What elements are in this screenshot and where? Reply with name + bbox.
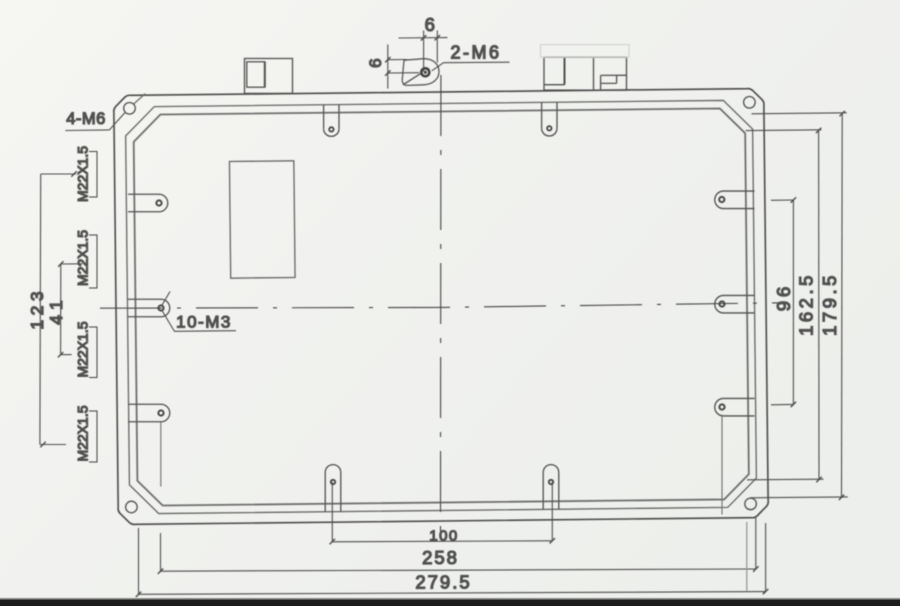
svg-text:4-M6: 4-M6 xyxy=(66,110,106,128)
svg-text:41: 41 xyxy=(46,295,66,324)
svg-text:M22X1.5: M22X1.5 xyxy=(75,405,91,461)
svg-text:96: 96 xyxy=(773,283,794,312)
svg-text:123: 123 xyxy=(27,287,47,330)
svg-text:162.5: 162.5 xyxy=(796,272,817,336)
svg-text:6: 6 xyxy=(425,14,435,35)
svg-text:10-M3: 10-M3 xyxy=(176,313,232,332)
svg-text:6: 6 xyxy=(366,58,385,67)
svg-text:279.5: 279.5 xyxy=(415,572,471,593)
svg-text:179.5: 179.5 xyxy=(819,272,840,336)
svg-text:100: 100 xyxy=(429,528,459,545)
svg-text:M22X1.5: M22X1.5 xyxy=(75,146,91,202)
svg-text:258: 258 xyxy=(422,547,459,568)
svg-text:2-M6: 2-M6 xyxy=(450,43,501,63)
svg-text:M22X1.5: M22X1.5 xyxy=(75,230,91,286)
svg-text:M22X1.5: M22X1.5 xyxy=(75,321,91,377)
